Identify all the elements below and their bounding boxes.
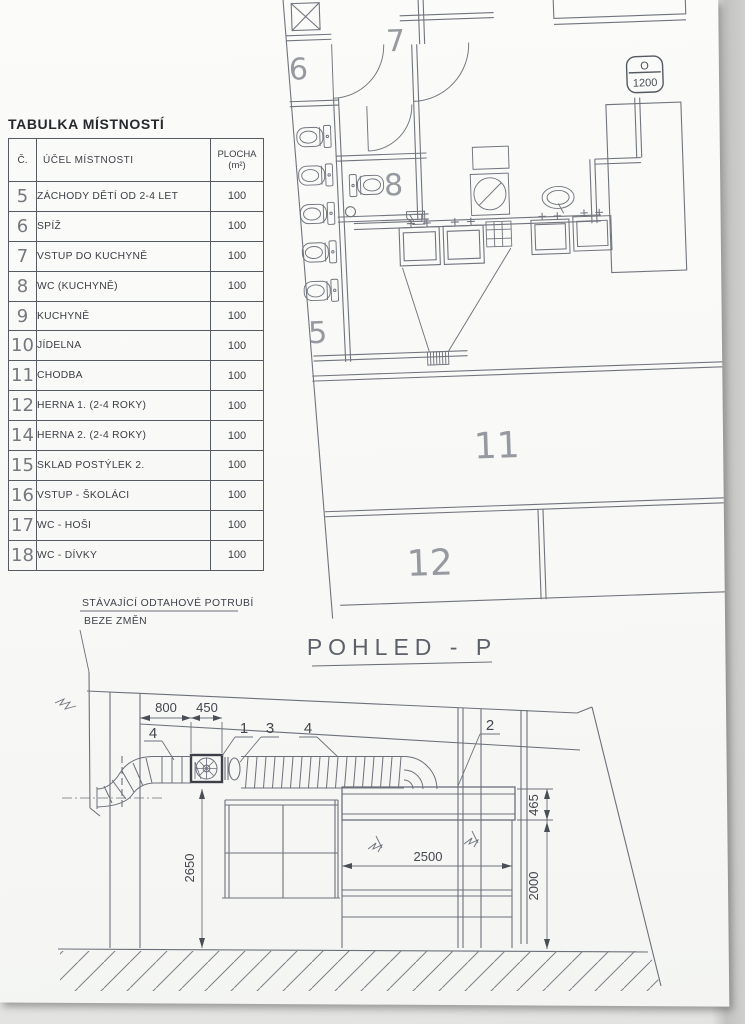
fan-unit (191, 755, 222, 782)
duct-rib (363, 757, 366, 788)
duct-rib (291, 757, 294, 788)
note-leader (80, 630, 89, 672)
section-view: STÁVAJÍCÍ ODTAHOVÉ POTRUBÍ BEZE ZMĚN POH… (55, 596, 662, 991)
duct-rib (309, 757, 312, 788)
section-title: POHLED - P (307, 634, 497, 660)
toilet-fixture-room8 (349, 174, 384, 197)
door-badge-bottom: 1200 (633, 77, 658, 90)
ground (58, 949, 662, 991)
duct-rib (255, 757, 258, 788)
plan-room-7: 7 (385, 24, 405, 60)
callout-2: 2 (486, 717, 494, 734)
section-window (222, 800, 340, 898)
right-edge-doors (721, 334, 745, 498)
bench (342, 820, 512, 948)
duct-rib (354, 757, 357, 788)
paper-shadow: TABULKA MÍSTNOSTÍ Č. ÚČEL MÍSTNOSTI PLOC… (0, 0, 745, 1024)
paper-sheet: TABULKA MÍSTNOSTÍ Č. ÚČEL MÍSTNOSTI PLOC… (0, 0, 745, 1024)
plan-room-11: 11 (473, 425, 520, 468)
duct-rib (372, 757, 375, 788)
section-title-underline (312, 662, 492, 666)
duct-connector (225, 757, 240, 780)
shaft-box (291, 3, 320, 31)
window-unit (531, 212, 570, 255)
floor-drain (345, 207, 355, 217)
dim-800: 800 (155, 700, 177, 715)
duct-rib (282, 757, 285, 788)
top-right-furniture (553, 0, 695, 274)
dimension-arrows (140, 715, 550, 949)
dim-450: 450 (196, 700, 218, 715)
callout-3: 3 (266, 720, 274, 737)
duct-rib (399, 757, 402, 788)
window-unit (399, 219, 441, 266)
toilet-fixture (304, 279, 339, 302)
plan-room-12: 12 (406, 542, 453, 585)
duct-rib (381, 757, 384, 788)
duct-rib (327, 757, 330, 788)
kitchen-equipment (469, 146, 510, 215)
duct-rib (336, 757, 339, 788)
callout-1: 1 (240, 720, 248, 737)
plan-room-8: 8 (383, 168, 403, 204)
duct-rib (345, 757, 348, 788)
dim-2650: 2650 (182, 854, 197, 883)
toilet-fixture (296, 125, 331, 148)
exhaust-hood (342, 787, 515, 820)
toilet-fixture (300, 202, 335, 225)
wall-toilet-strip (333, 98, 350, 362)
plan-room-5: 5 (308, 316, 328, 352)
window-unit (443, 217, 485, 264)
duct-rib (318, 757, 321, 788)
plan-room-6: 6 (288, 52, 308, 88)
callout-4b: 4 (304, 720, 312, 737)
dim-465: 465 (526, 794, 541, 816)
door-badge-top: O (640, 60, 649, 72)
duct-rib (273, 757, 276, 788)
plan-edge (283, 0, 333, 620)
window-wall (354, 215, 601, 230)
note-line2: BEZE ZMĚN (84, 614, 147, 627)
toilet-fixture (298, 164, 333, 187)
scanned-drawing-sheet: { "table": { "title": "TABULKA MÍSTNOSTÍ… (0, 0, 745, 1024)
note-line1: STÁVAJÍCÍ ODTAHOVÉ POTRUBÍ (82, 596, 254, 609)
duct-rib (390, 757, 393, 788)
dim-2500: 2500 (414, 849, 443, 864)
sink (542, 186, 575, 214)
duct-rib (300, 757, 303, 788)
drawing-canvas: O 1200 5 6 7 8 11 12 STÁVAJÍCÍ ODTAHOVÉ … (0, 0, 745, 1024)
floor-plan: O 1200 5 6 7 8 11 12 (283, 0, 745, 620)
duct-rib (246, 757, 249, 788)
dim-2000: 2000 (526, 872, 541, 901)
callout-4a: 4 (149, 725, 157, 742)
toilet-fixture (302, 241, 337, 264)
flex-duct-left (62, 757, 191, 810)
flex-duct-right (241, 757, 437, 790)
duct-rib (264, 757, 267, 788)
dimensions (140, 715, 553, 949)
section-structure (87, 672, 661, 986)
wall-corridor11 (311, 341, 745, 607)
wall-right-block (588, 98, 644, 224)
